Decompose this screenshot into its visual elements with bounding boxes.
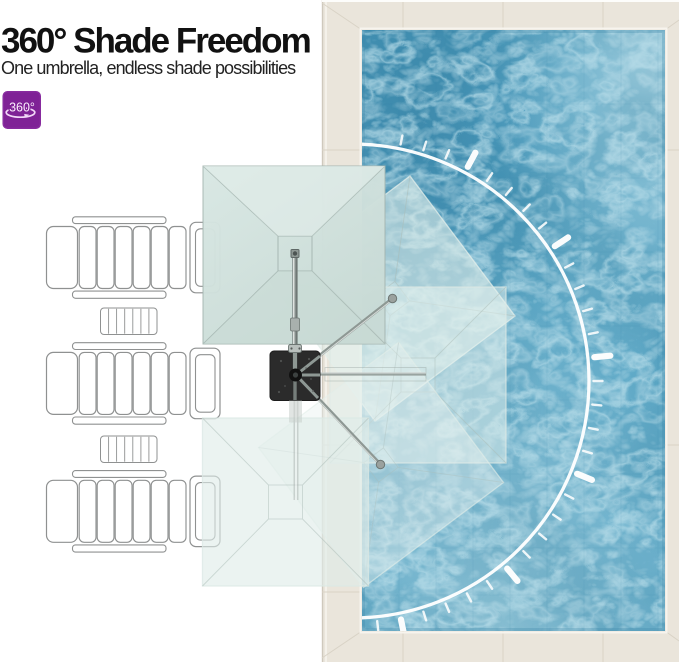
svg-text:One umbrella, endless shade po: One umbrella, endless shade possibilitie… — [1, 58, 296, 78]
svg-text:360°: 360° — [9, 101, 35, 115]
svg-text:360° Shade Freedom: 360° Shade Freedom — [1, 22, 310, 61]
